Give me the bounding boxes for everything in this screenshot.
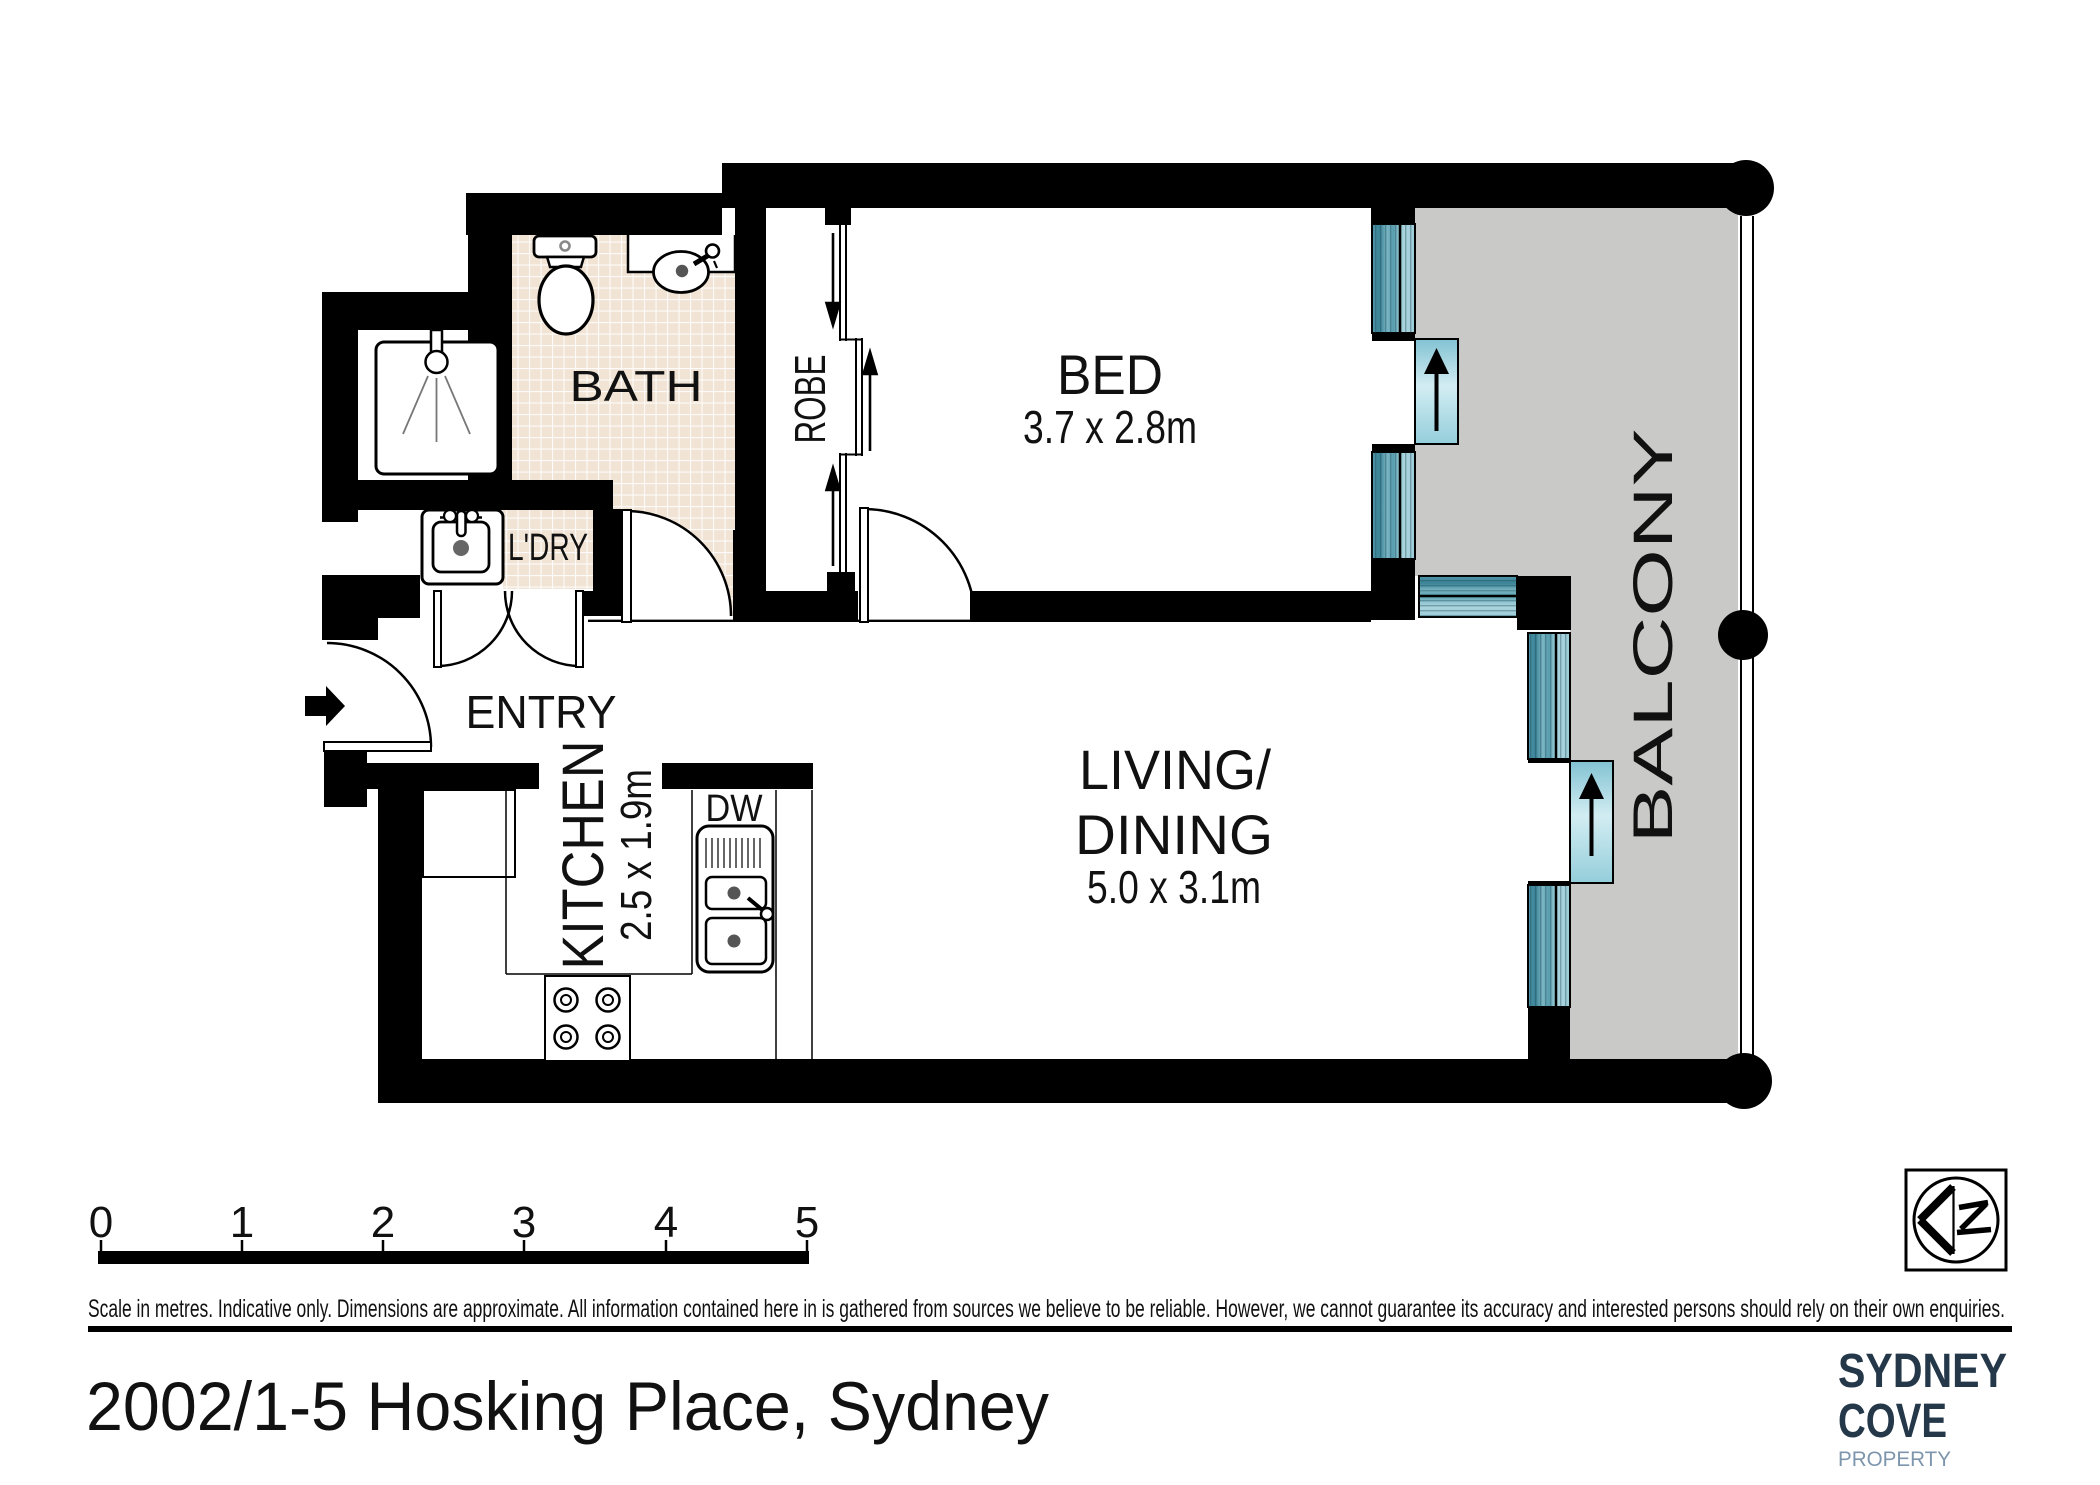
svg-text:2: 2 (371, 1198, 395, 1247)
svg-text:LIVING/: LIVING/ (1079, 738, 1271, 801)
svg-text:2002/1-5 Hosking Place, Sydney: 2002/1-5 Hosking Place, Sydney (86, 1368, 1049, 1445)
svg-text:4: 4 (654, 1198, 678, 1247)
svg-text:DW: DW (706, 788, 763, 830)
svg-text:DINING: DINING (1075, 803, 1273, 866)
svg-text:PROPERTY: PROPERTY (1838, 1448, 1951, 1471)
svg-text:BATH: BATH (570, 362, 703, 411)
svg-text:3: 3 (512, 1198, 536, 1247)
svg-text:5: 5 (795, 1198, 819, 1247)
svg-text:COVE: COVE (1838, 1395, 1947, 1448)
svg-text:2.5 x 1.9m: 2.5 x 1.9m (612, 769, 661, 941)
svg-text:KITCHEN: KITCHEN (551, 741, 616, 970)
svg-text:BALCONY: BALCONY (1621, 429, 1684, 844)
svg-text:SYDNEY: SYDNEY (1838, 1345, 2007, 1398)
svg-text:3.7 x 2.8m: 3.7 x 2.8m (1023, 401, 1197, 453)
svg-text:Scale in metres. Indicative on: Scale in metres. Indicative only. Dimens… (88, 1295, 2005, 1323)
svg-text:1: 1 (230, 1198, 254, 1247)
svg-text:BED: BED (1057, 343, 1163, 406)
svg-text:ENTRY: ENTRY (466, 686, 617, 738)
svg-text:5.0 x 3.1m: 5.0 x 3.1m (1087, 861, 1261, 913)
svg-text:0: 0 (89, 1198, 113, 1247)
svg-text:L'DRY: L'DRY (508, 527, 588, 569)
svg-text:ROBE: ROBE (786, 355, 835, 444)
